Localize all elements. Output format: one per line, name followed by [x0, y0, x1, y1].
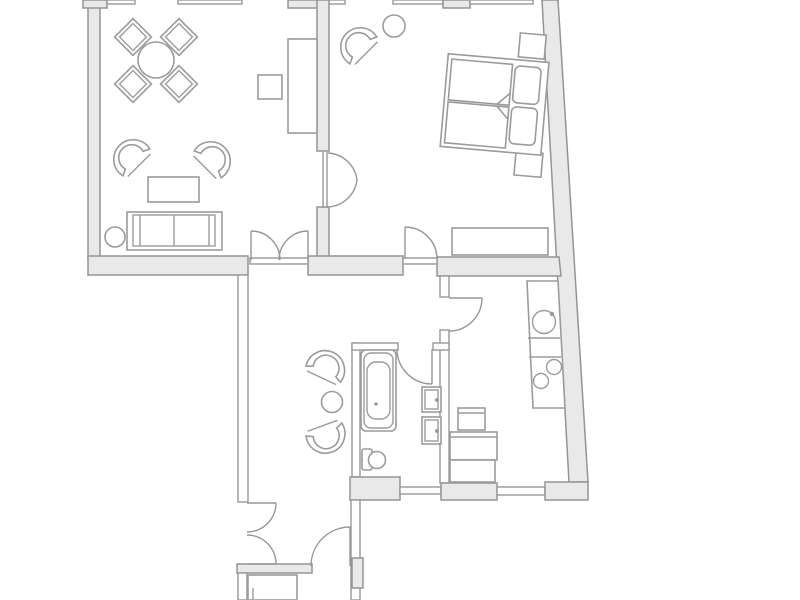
- armchair-hall-top: [304, 344, 351, 386]
- sink-faucet: [550, 312, 554, 316]
- door-swing-arc: [247, 503, 276, 532]
- door-swing-arc: [279, 231, 308, 260]
- dishwasher: [458, 408, 485, 430]
- armchair-living-left: [106, 132, 153, 179]
- sofa: [127, 212, 222, 250]
- kitchen-counter: [527, 281, 565, 408]
- toilet: [362, 449, 386, 470]
- door-swing-arc: [251, 231, 280, 260]
- living-bottom-wall-left: [88, 256, 248, 275]
- utility-strip-wall: [400, 487, 441, 494]
- armchair-hall-bottom: [304, 419, 350, 459]
- hall-side-table: [322, 392, 343, 413]
- double-bed: [438, 27, 553, 177]
- bedroom-sideboard: [452, 228, 548, 255]
- living-hall-double-door: [251, 231, 308, 260]
- divider-wall-lower: [317, 207, 329, 258]
- slanted-east-wall: [542, 0, 588, 482]
- living-bedroom-double-door: [323, 152, 357, 208]
- pillow-top: [512, 66, 541, 105]
- top-window-2: [178, 0, 242, 4]
- kitchen-south-wall-west: [441, 483, 497, 500]
- bedroom-door: [405, 227, 437, 259]
- vestibule-east-pillar: [352, 558, 363, 588]
- top-window-1: [107, 0, 135, 4]
- kitchen-appliance-bottom: [450, 460, 495, 482]
- left-wall: [88, 0, 100, 258]
- armchair-seat-edge: [308, 420, 338, 431]
- bathroom-west-wall: [352, 343, 360, 477]
- armchair-bedroom: [333, 20, 380, 67]
- top-window-5: [470, 0, 533, 4]
- armchair-seat-edge: [128, 154, 151, 177]
- dishwasher-body: [458, 408, 485, 430]
- armchair-seat-edge: [307, 371, 336, 385]
- hall-west-wall: [238, 275, 248, 502]
- bathroom-south-wall: [350, 477, 400, 500]
- kitchen-door: [449, 298, 482, 331]
- door-swing-arc: [311, 527, 350, 566]
- bedroom-door-threshold: [403, 258, 437, 264]
- bathroom-north-wall-east: [433, 343, 449, 350]
- door-swing-arc: [405, 227, 437, 259]
- armchair-seat-edge: [355, 42, 378, 65]
- door-swing-arc: [328, 180, 357, 207]
- washbasin-bottom: [422, 417, 441, 444]
- coffee-table: [148, 177, 199, 202]
- divider-wall-upper: [317, 0, 329, 151]
- kitchen-south-window: [497, 487, 545, 495]
- door-swing-arc: [397, 349, 432, 384]
- top-pier-left: [83, 0, 107, 8]
- basin-faucet: [435, 429, 439, 433]
- vestibule-door: [311, 527, 350, 566]
- armchair-seat-edge: [193, 156, 216, 179]
- appliance-body: [450, 432, 497, 460]
- basin-faucet: [435, 398, 439, 402]
- door-swing-arc: [328, 153, 357, 180]
- top-pier-right: [443, 0, 470, 8]
- vestibule-west-wall: [238, 573, 247, 600]
- wardrobe-body: [248, 575, 297, 600]
- armchair-shell: [194, 134, 238, 178]
- armchair-living-right: [191, 134, 238, 181]
- door-swing-arc: [449, 298, 482, 331]
- kitchen-appliance-middle: [450, 432, 497, 460]
- bathroom-north-wall: [352, 343, 398, 350]
- hall-south-wall: [237, 564, 312, 573]
- armchair-shell: [306, 344, 351, 382]
- desk: [288, 39, 317, 133]
- bedroom-bottom-wall: [437, 257, 561, 276]
- hall-west-double-door: [247, 503, 276, 564]
- armchair-shell: [306, 423, 351, 459]
- washbasin-top: [422, 387, 441, 412]
- pillow-bottom: [509, 106, 538, 145]
- toilet-bowl: [369, 452, 386, 469]
- floor-plan-svg: [0, 0, 800, 600]
- floor-plan-page: [0, 0, 800, 600]
- kitchen-west-wall-upper: [440, 276, 449, 297]
- top-window-4: [393, 0, 443, 4]
- armchair-shell: [333, 20, 377, 64]
- door-swing-arc: [247, 535, 276, 564]
- side-table-bedroom: [383, 15, 405, 37]
- side-table-living: [105, 227, 125, 247]
- armchair-shell: [106, 132, 150, 176]
- counter-top: [527, 281, 565, 408]
- bathtub-drain: [374, 402, 378, 406]
- nightstand-top: [518, 33, 546, 59]
- bathtub: [361, 350, 396, 431]
- bathroom-door: [397, 349, 432, 384]
- desk-chair: [258, 75, 282, 99]
- dining-table: [138, 42, 174, 78]
- living-bottom-wall-right: [308, 256, 403, 275]
- vestibule-wardrobe: [248, 575, 297, 600]
- kitchen-south-wall-east: [545, 482, 588, 500]
